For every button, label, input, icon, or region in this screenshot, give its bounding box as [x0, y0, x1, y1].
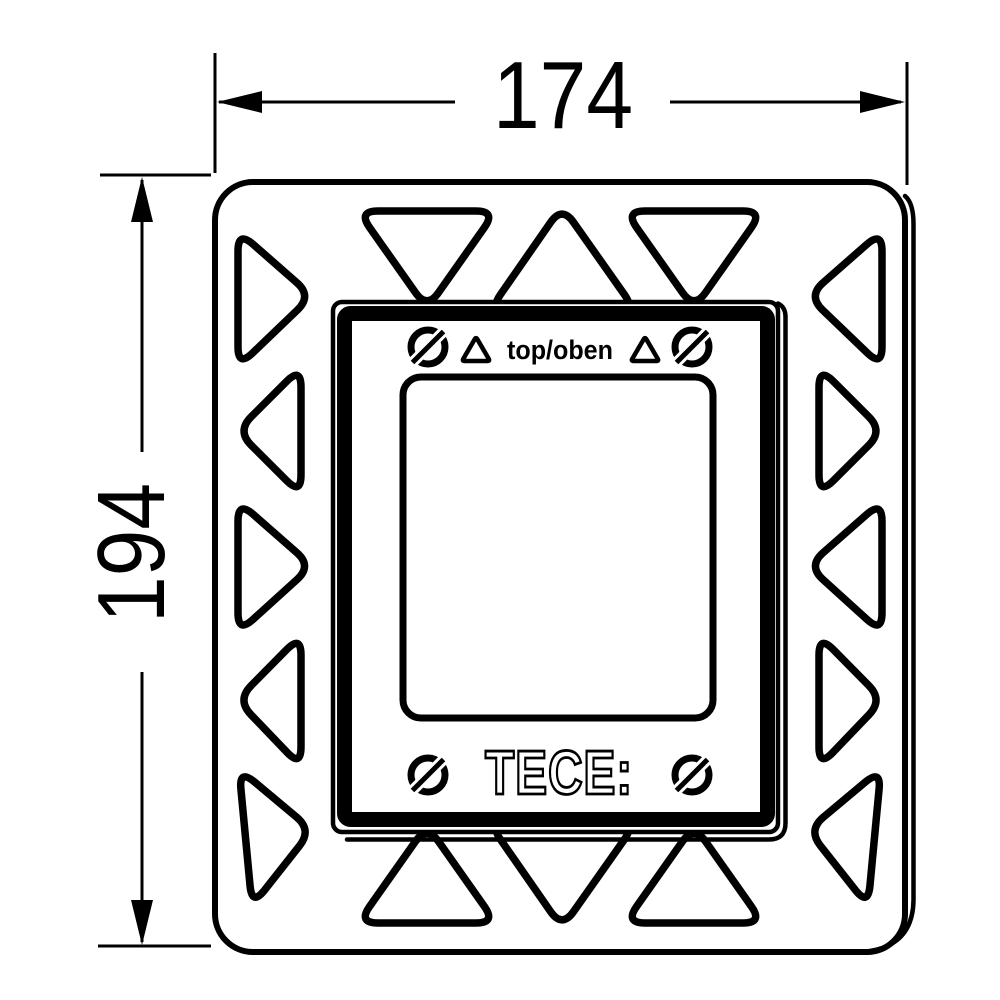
height-dimension-value: 194: [78, 483, 185, 623]
height-dimension: 194: [78, 175, 211, 946]
width-dimension: 174: [215, 42, 907, 185]
arrow-down-icon: [131, 900, 153, 945]
arrow-up-icon: [131, 177, 153, 222]
arrow-right-icon: [860, 91, 905, 113]
plate-opening: [403, 377, 713, 718]
arrow-left-icon: [217, 91, 262, 113]
brand-logo: TECE:: [485, 739, 633, 808]
width-dimension-value: 174: [493, 42, 633, 149]
orientation-label: top/oben: [507, 335, 613, 365]
technical-drawing-page: top/oben TECE: 174 194: [0, 0, 1000, 1000]
mounting-frame-drawing: top/oben TECE: 174 194: [0, 0, 1000, 1000]
